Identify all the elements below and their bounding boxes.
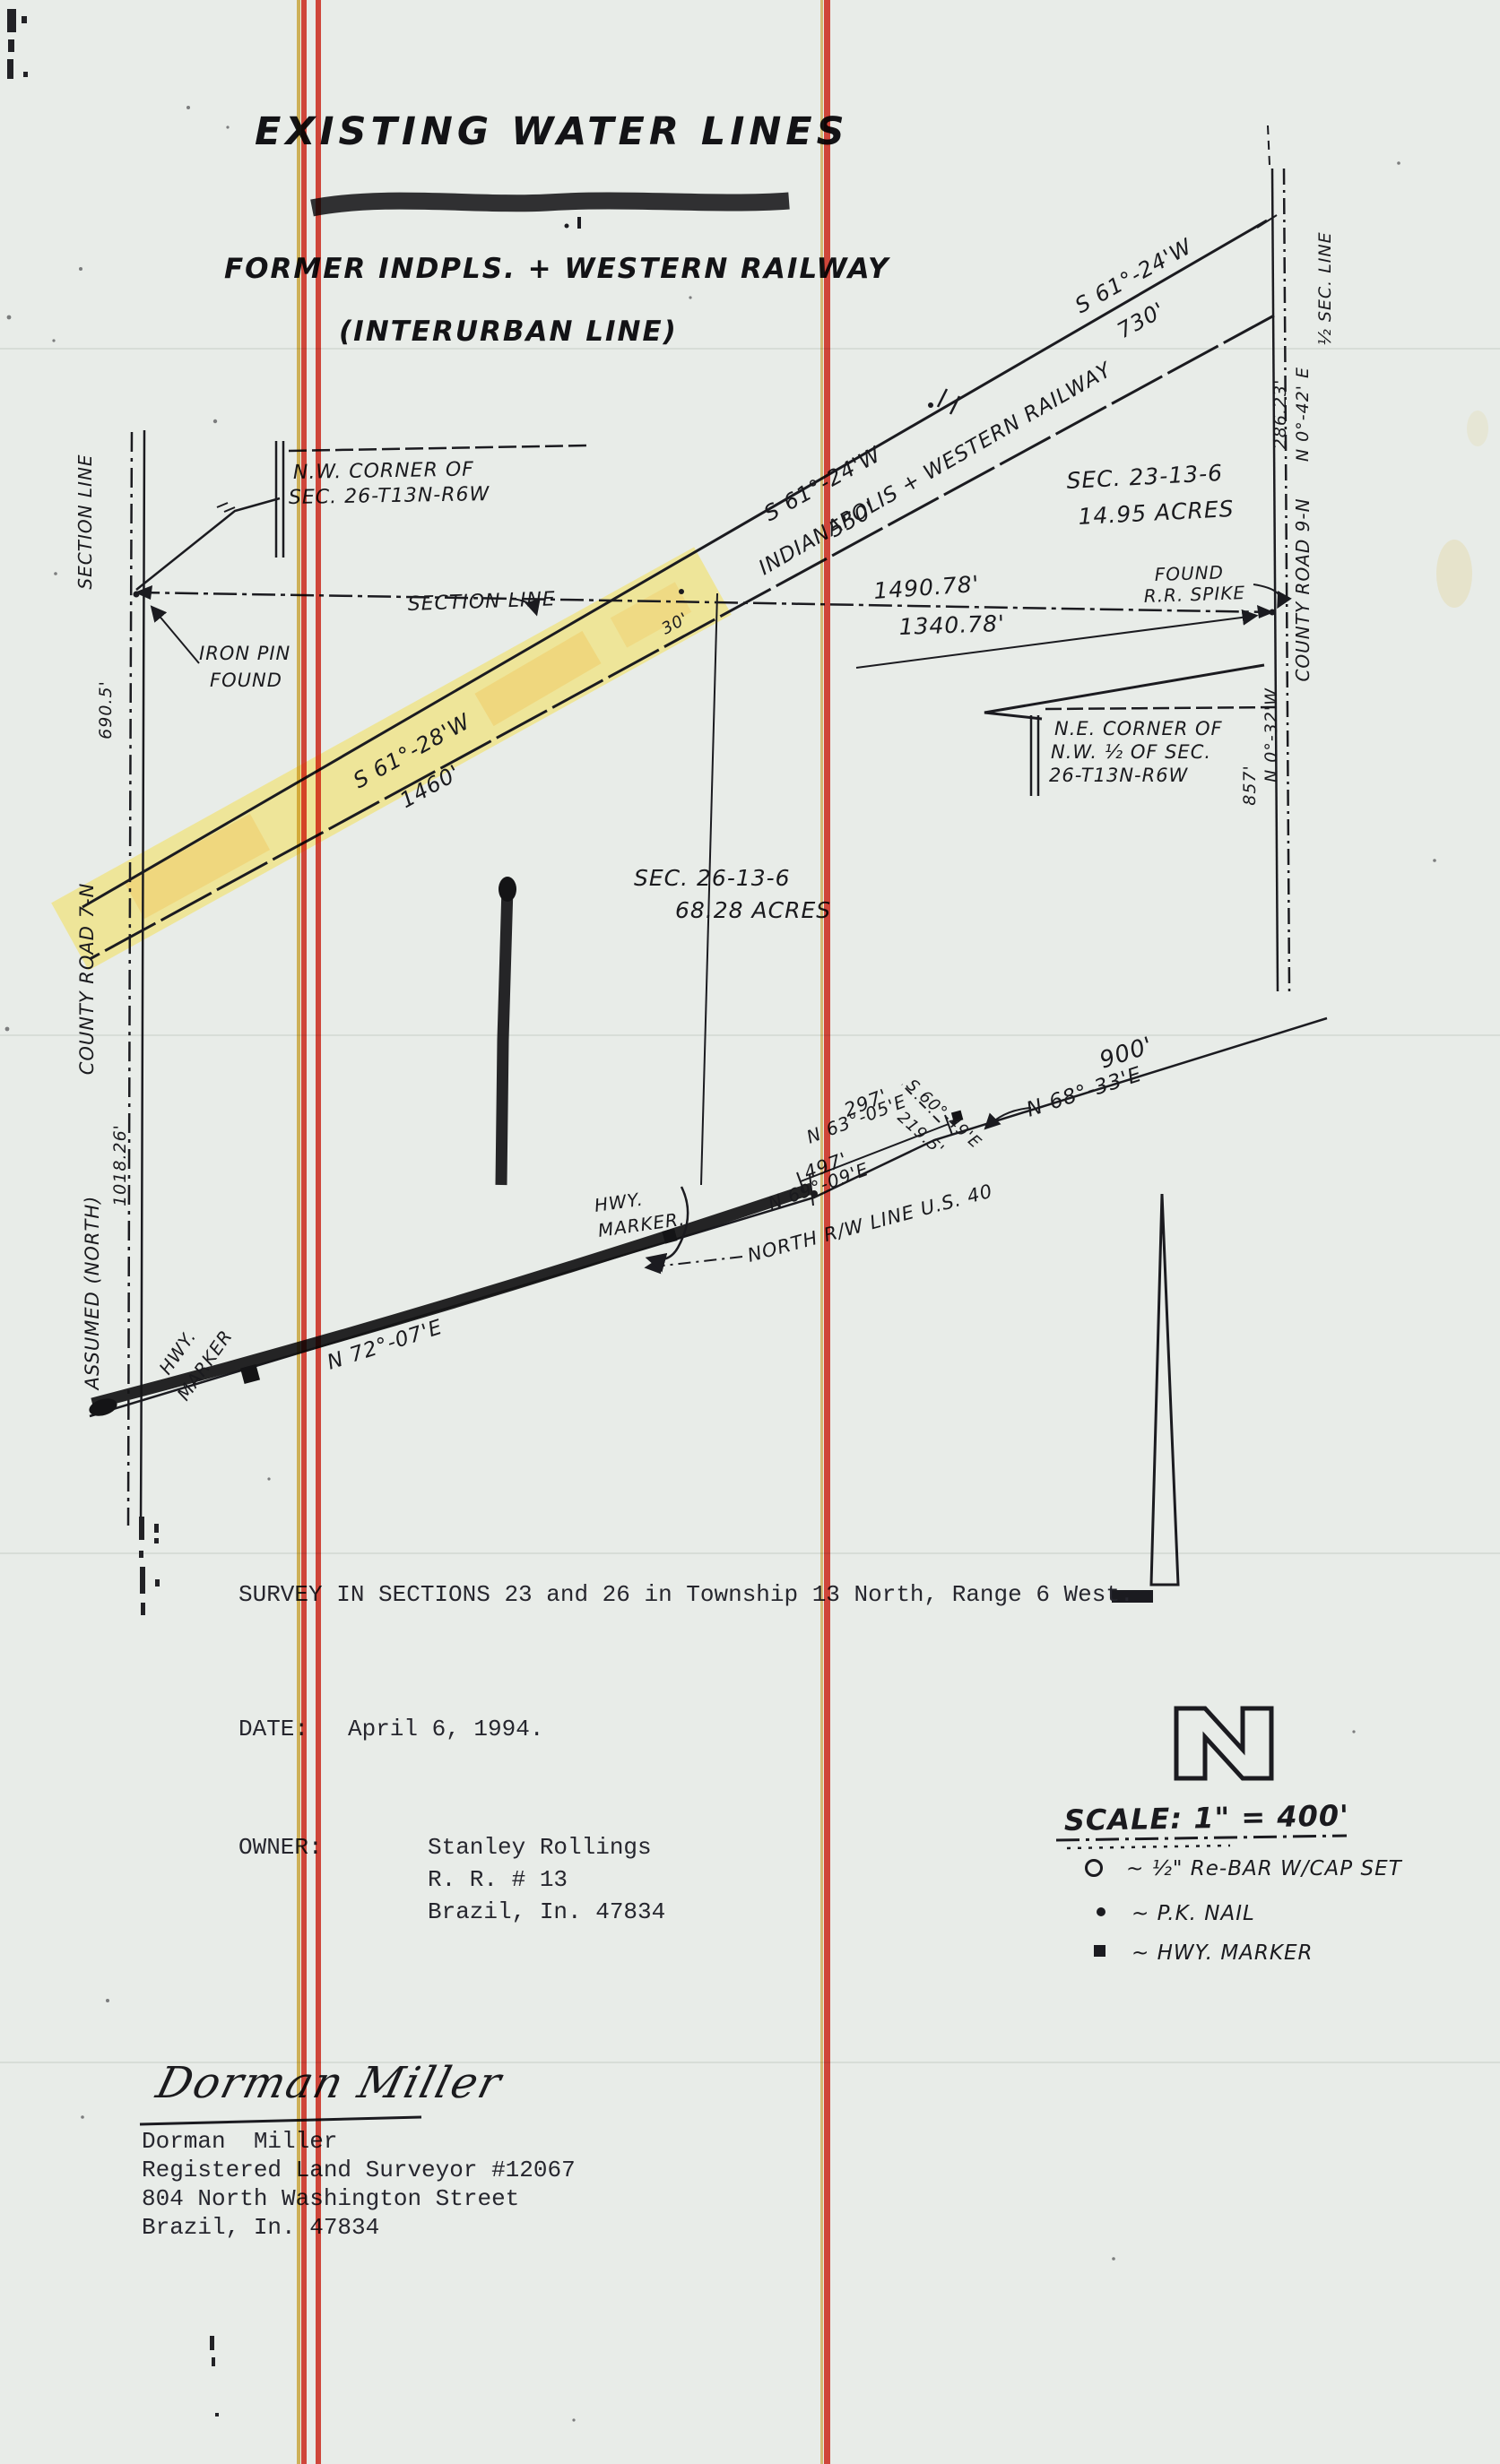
county-road-7n-label: COUNTY ROAD 7-N: [76, 883, 98, 1076]
found-rr-spike-label: FOUND: [1154, 561, 1224, 585]
dimension-28623: 286.23': [1270, 379, 1290, 450]
surveyor-signature: Dorman Miller: [152, 2058, 507, 2108]
signature-underline: [140, 2117, 421, 2124]
surveyor-street: 804 North Washington Street: [142, 2185, 519, 2212]
legend-item-hwy-marker: ~ HWY. MARKER: [1132, 1941, 1313, 1965]
scan-artifact-red-stripe: [824, 0, 830, 2464]
county-road-9n-label: COUNTY ROAD 9-N: [1292, 497, 1314, 681]
half-sec-line-label: ½ SEC. LINE: [1315, 231, 1335, 345]
scale-and-legend-symbols: [1056, 1836, 1347, 1957]
map-labels: N.W. CORNER OF SEC. 26-T13N-R6W IRON PIN…: [74, 231, 1403, 1965]
survey-description: SURVEY IN SECTIONS 23 and 26 in Township…: [238, 1581, 1134, 1608]
date-value: April 6, 1994.: [348, 1716, 543, 1742]
scale-text: SCALE: 1" = 400': [1063, 1798, 1349, 1837]
owner-address-line1: R. R. # 13: [428, 1866, 568, 1893]
iron-pin-label: IRON PIN: [199, 643, 290, 664]
page-subtitle-line1: FORMER INDPLS. + WESTERN RAILWAY: [224, 253, 890, 285]
page-title: EXISTING WATER LINES: [255, 109, 849, 154]
assumed-north-label: ASSUMED (NORTH): [82, 1196, 103, 1392]
ne-corner-label: N.E. CORNER OF: [1054, 718, 1223, 739]
iron-pin-label: FOUND: [210, 670, 282, 691]
marked-water-line-vertical: [499, 877, 516, 1185]
hwy-marker-square-symbol: [1094, 1945, 1105, 1957]
page-subtitle-line2: (INTERURBAN LINE): [339, 316, 678, 348]
owner-name: Stanley Rollings: [428, 1834, 652, 1861]
owner-label: OWNER:: [238, 1834, 323, 1861]
right-road-lines: [1268, 125, 1289, 991]
sec26-acres-label: 68.28 ACRES: [675, 897, 831, 923]
found-rr-spike-label: R.R. SPIKE: [1143, 582, 1245, 607]
sec23-acres-label: 14.95 ACRES: [1078, 496, 1235, 530]
rebar-circle-symbol: [1087, 1861, 1102, 1876]
dimension-1340: 1340.78': [898, 610, 1005, 640]
ne-corner-label: 26-T13N-R6W: [1049, 765, 1189, 786]
legend-item-rebar: ~ ½" Re-BAR W/CAP SET: [1126, 1857, 1403, 1880]
legend-item-pk-nail: ~ P.K. NAIL: [1132, 1902, 1255, 1925]
bearing-n032w: N 0°-32'W: [1262, 687, 1281, 782]
scan-artifact-yellow-stripe: [297, 0, 300, 2464]
surveyor-typed-name: Dorman Miller: [142, 2128, 337, 2155]
surveyor-city: Brazil, In. 47834: [142, 2214, 379, 2241]
owner-address-line2: Brazil, In. 47834: [428, 1898, 665, 1925]
surveyor-credential: Registered Land Surveyor #12067: [142, 2157, 576, 2183]
section-line-label: SECTION LINE: [407, 588, 556, 616]
scan-artifact-yellow-stripe: [820, 0, 823, 2464]
bearing-6833: N 68°-33'E: [1024, 1063, 1145, 1122]
scanned-survey-document: N.W. CORNER OF SEC. 26-T13N-R6W IRON PIN…: [0, 0, 1500, 2464]
left-section-line-label: SECTION LINE: [74, 454, 96, 589]
railway-name-label: INDIANAPOLIS + WESTERN RAILWAY: [755, 358, 1116, 580]
rr-spike-leader: [1253, 584, 1280, 606]
bearing-n042e: N 0°-42' E: [1293, 367, 1313, 462]
dimension-101826: 1018.26': [110, 1124, 130, 1206]
hwy-marker-label: HWY.: [593, 1189, 645, 1216]
north-arrow: [1112, 1194, 1271, 1778]
title-underline: [312, 201, 789, 208]
dimension-1490: 1490.78': [872, 571, 980, 604]
sec26-parcel-label: SEC. 26-13-6: [634, 865, 791, 891]
paper-stain: [1436, 540, 1472, 608]
dimension-6905: 690.5': [96, 680, 116, 739]
sec23-parcel-label: SEC. 23-13-6: [1066, 460, 1224, 494]
pk-nail-dot-symbol: [1097, 1907, 1105, 1916]
north-letter: [1176, 1708, 1271, 1778]
scan-artifact-red-stripe: [301, 0, 307, 2464]
scan-artifact-red-stripe: [316, 0, 321, 2464]
paper-stain: [1467, 411, 1488, 446]
dimension-857: 857': [1240, 765, 1260, 806]
ne-corner-label: N.W. ½ OF SEC.: [1051, 741, 1211, 763]
bearing-730: S 61°-24'W: [1071, 233, 1197, 318]
